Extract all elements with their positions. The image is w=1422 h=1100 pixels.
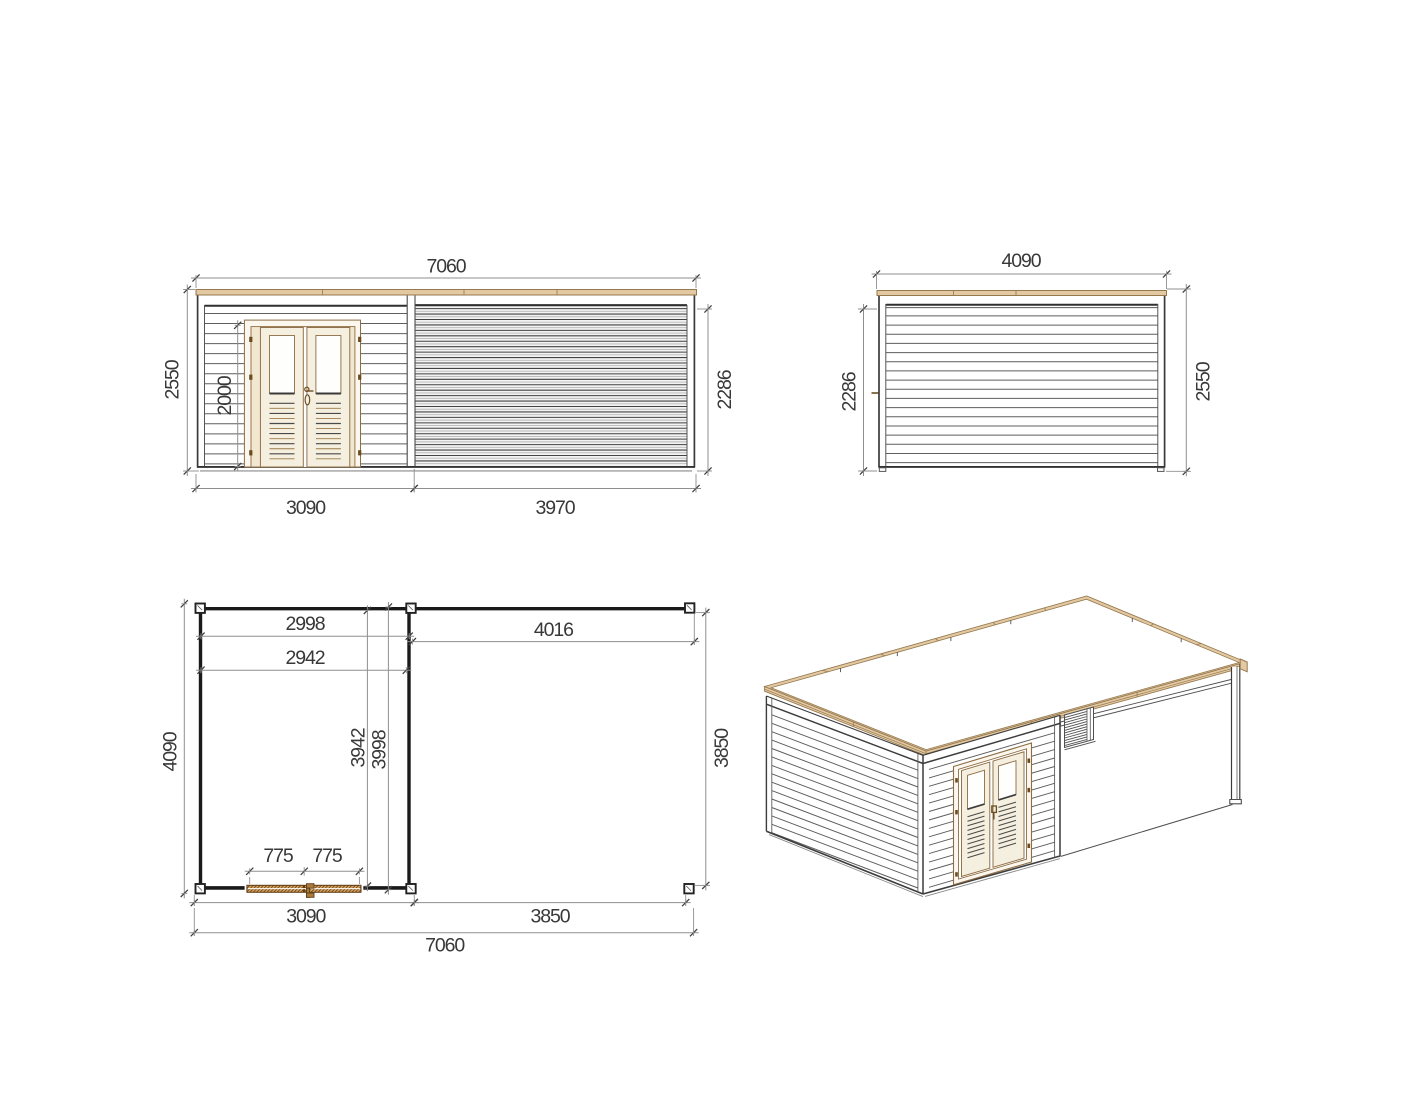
svg-text:7060: 7060 xyxy=(425,935,465,957)
svg-text:4016: 4016 xyxy=(534,619,573,641)
svg-text:2550: 2550 xyxy=(162,359,184,399)
svg-text:2000: 2000 xyxy=(214,375,236,415)
svg-text:775: 775 xyxy=(263,845,293,867)
svg-text:4090: 4090 xyxy=(159,731,181,771)
svg-text:2942: 2942 xyxy=(286,647,325,669)
svg-text:775: 775 xyxy=(312,845,342,867)
svg-text:3850: 3850 xyxy=(531,906,571,928)
svg-text:3850: 3850 xyxy=(711,728,733,768)
svg-text:3090: 3090 xyxy=(286,497,326,519)
svg-text:3998: 3998 xyxy=(368,730,390,769)
svg-text:2998: 2998 xyxy=(286,613,325,635)
svg-text:2286: 2286 xyxy=(714,370,736,409)
svg-text:3970: 3970 xyxy=(536,497,576,519)
svg-text:2550: 2550 xyxy=(1193,361,1215,401)
svg-text:4090: 4090 xyxy=(1002,250,1042,272)
svg-text:7060: 7060 xyxy=(427,256,467,278)
svg-text:3942: 3942 xyxy=(347,728,369,767)
svg-text:2286: 2286 xyxy=(839,372,861,411)
svg-text:3090: 3090 xyxy=(286,906,326,928)
